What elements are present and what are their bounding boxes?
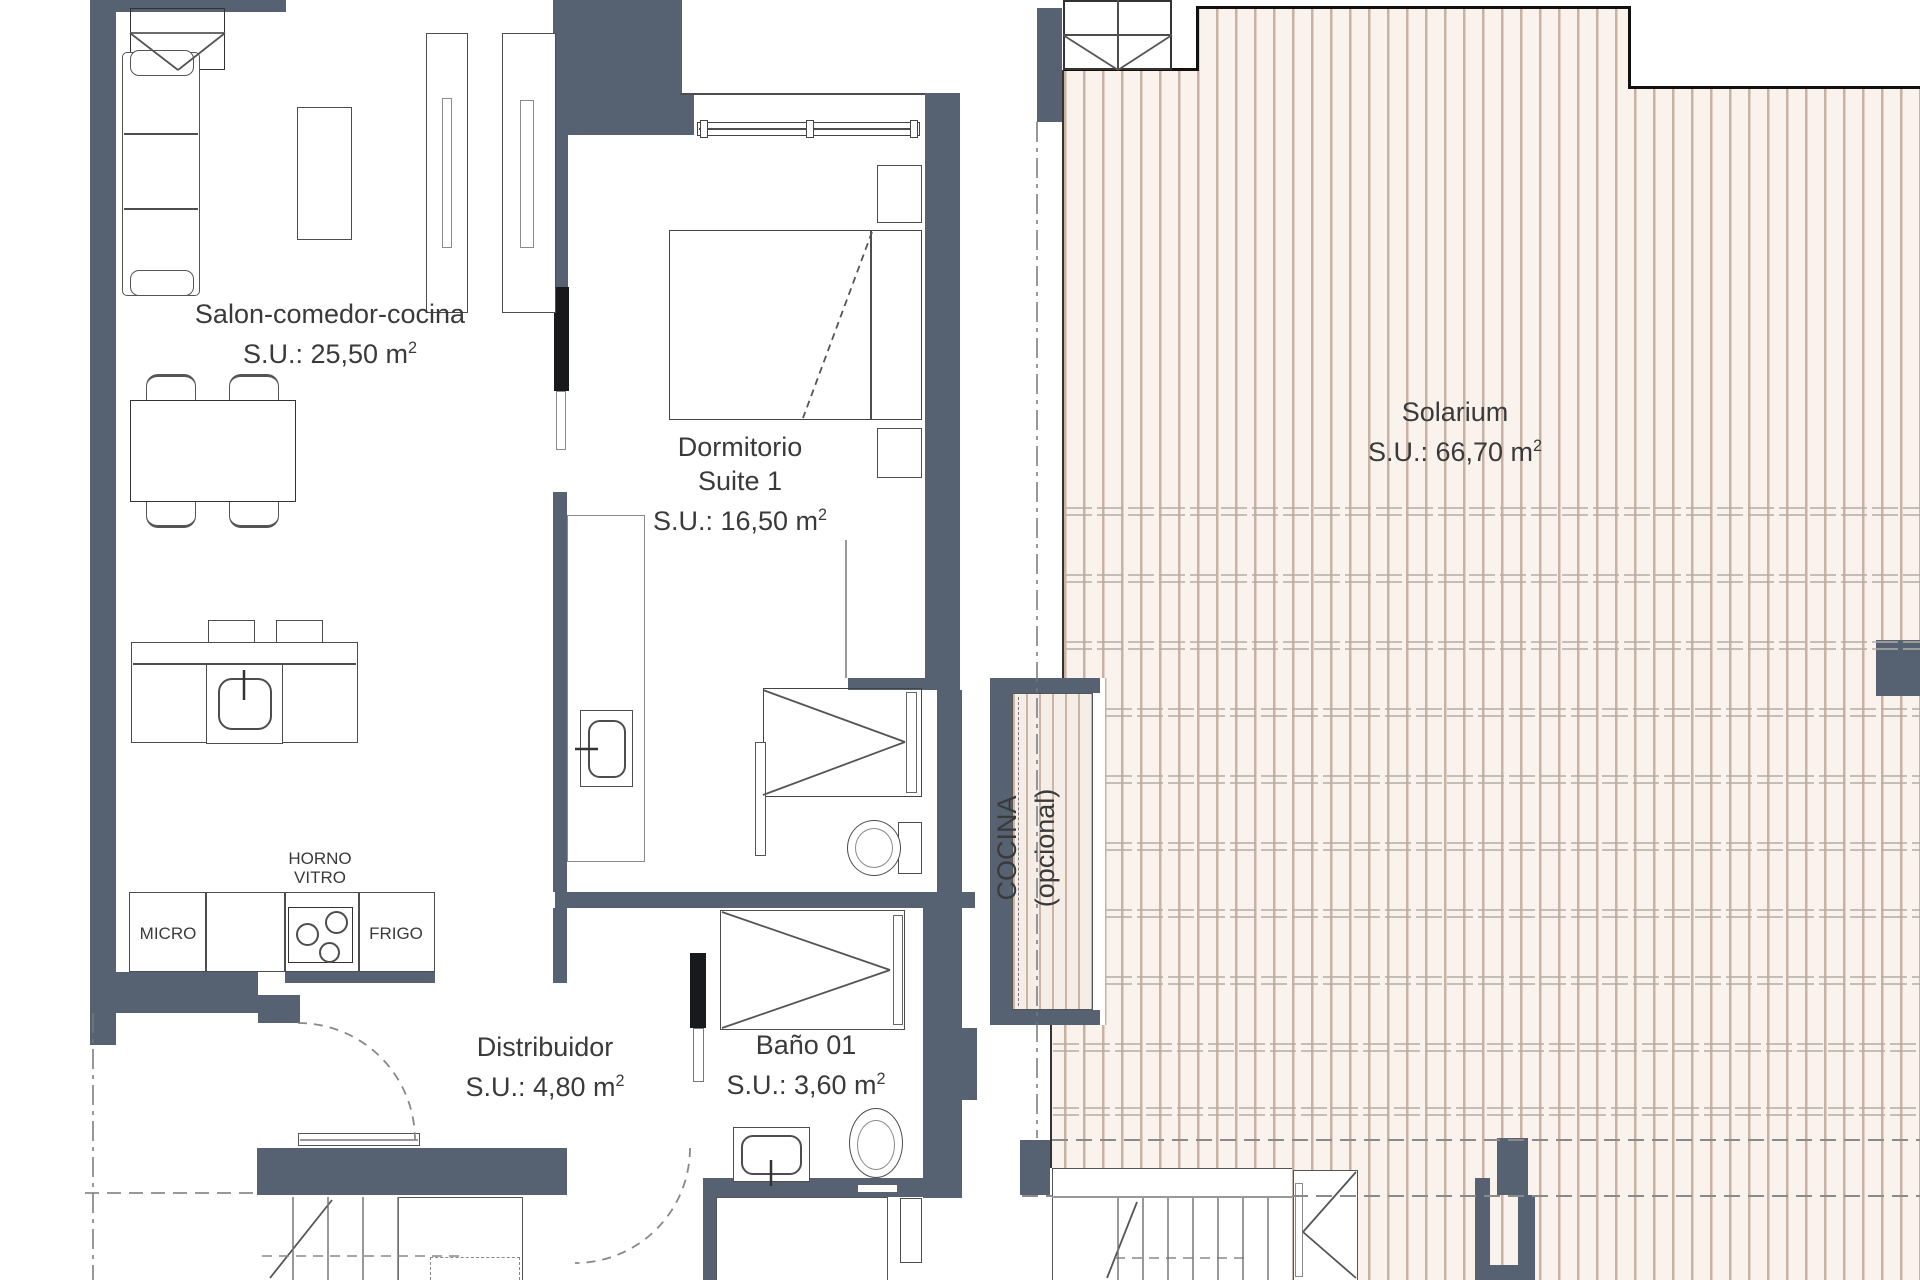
room-area: S.U.: 25,50 m2 xyxy=(190,331,470,371)
room-name2: (opcional) xyxy=(1026,718,1064,978)
room-name: Dormitorio xyxy=(640,430,840,464)
room-label-dormitorio: Dormitorio Suite 1 S.U.: 16,50 m2 xyxy=(640,430,840,538)
room-label-solarium: Solarium S.U.: 66,70 m2 xyxy=(1330,395,1580,469)
room-name: COCINA xyxy=(988,718,1026,978)
line-overlay xyxy=(0,0,1920,1280)
appliance-label: HORNO xyxy=(270,849,370,868)
room-name: Distribuidor xyxy=(425,1030,665,1064)
room-name2: Suite 1 xyxy=(640,464,840,498)
room-area: S.U.: 66,70 m2 xyxy=(1330,429,1580,469)
room-name: Solarium xyxy=(1330,395,1580,429)
label-horno-vitro: HORNO VITRO xyxy=(270,849,370,887)
room-name: Salon-comedor-cocina xyxy=(190,297,470,331)
room-name: Baño 01 xyxy=(706,1028,906,1062)
room-label-salon: Salon-comedor-cocina S.U.: 25,50 m2 xyxy=(190,297,470,371)
room-label-distribuidor: Distribuidor S.U.: 4,80 m2 xyxy=(425,1030,665,1104)
room-area: S.U.: 4,80 m2 xyxy=(425,1064,665,1104)
room-label-bano: Baño 01 S.U.: 3,60 m2 xyxy=(706,1028,906,1102)
room-label-cocina-opcional: COCINA (opcional) xyxy=(988,718,1118,978)
floor-plan: Salon-comedor-cocina S.U.: 25,50 m2 Dorm… xyxy=(0,0,1920,1280)
room-area: S.U.: 3,60 m2 xyxy=(706,1062,906,1102)
label-micro: MICRO xyxy=(132,924,204,943)
label-frigo: FRIGO xyxy=(360,924,432,943)
appliance-label: VITRO xyxy=(270,868,370,887)
room-area: S.U.: 16,50 m2 xyxy=(640,498,840,538)
